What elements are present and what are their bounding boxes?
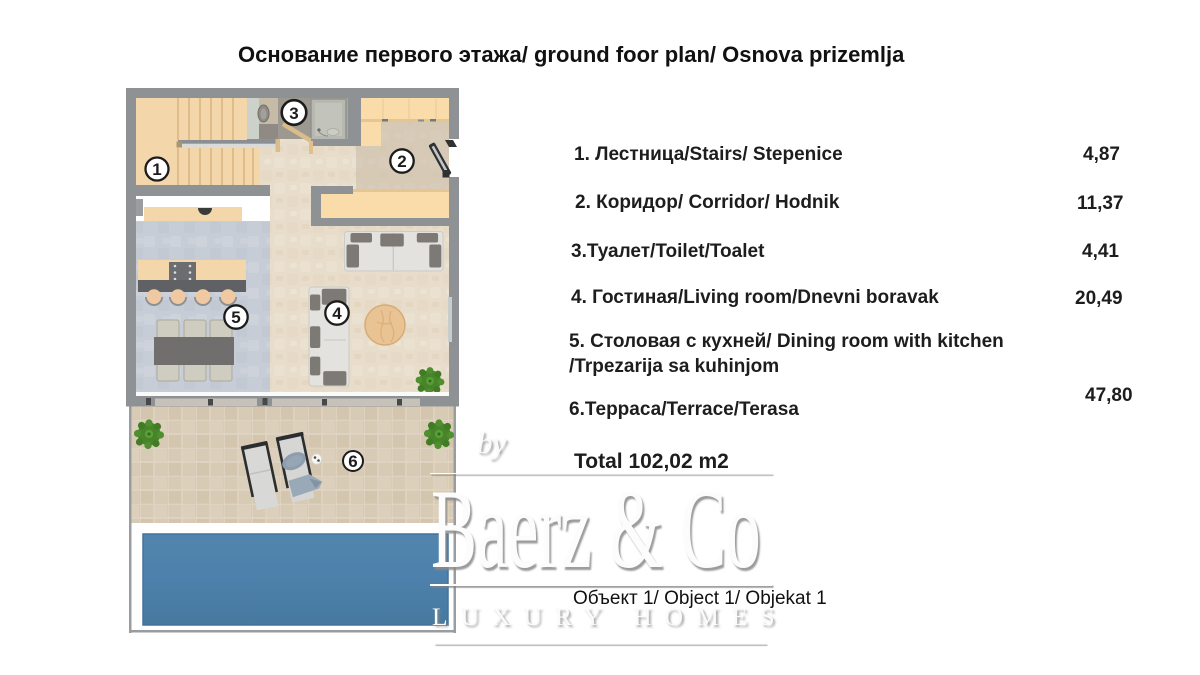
- svg-text:6: 6: [348, 452, 357, 471]
- svg-text:2: 2: [397, 152, 406, 171]
- svg-text:3: 3: [289, 104, 298, 123]
- svg-text:5: 5: [231, 308, 240, 327]
- svg-text:1: 1: [152, 160, 161, 179]
- svg-text:4: 4: [332, 304, 342, 323]
